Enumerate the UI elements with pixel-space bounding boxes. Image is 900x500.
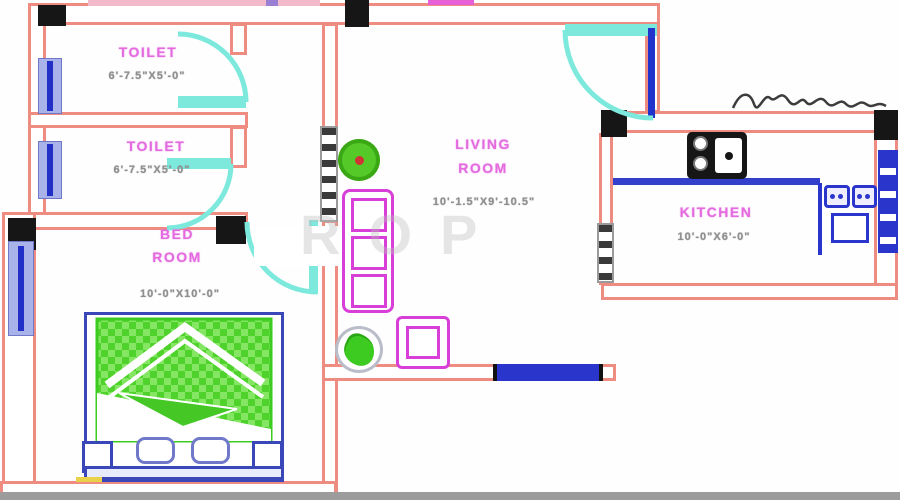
entry-door-closed-leaf — [648, 28, 655, 118]
sofa-seat — [351, 274, 387, 308]
column-top-left — [38, 5, 66, 26]
signature-squiggle — [733, 95, 886, 108]
stove-icon — [687, 132, 747, 179]
wall-toilet-right-mid — [230, 126, 247, 168]
toilet1-door-leaf — [178, 96, 246, 108]
wall-top — [28, 3, 660, 25]
kitchen-dims: 10'-0"X6'-0" — [678, 231, 751, 243]
window-bedroom — [8, 241, 34, 336]
top-edge-violet-mark — [266, 0, 278, 6]
living-label-line1: LIVING — [455, 136, 511, 152]
floor-plan: ROP TOILET 6'-7.5"X5'-0" TOILET 6'-7.5"X… — [0, 0, 900, 500]
top-edge-pink-band — [88, 0, 320, 6]
wall-toilet-divider — [28, 112, 248, 128]
top-edge-magenta-mark — [428, 0, 474, 5]
entry-door-leaf — [565, 24, 657, 36]
stove-hob — [715, 138, 742, 173]
stove-knob — [725, 152, 733, 160]
living-label-line2: ROOM — [458, 160, 508, 176]
toilet2-label: TOILET — [127, 138, 186, 154]
sink-basin — [824, 185, 850, 208]
sink-edge — [818, 183, 822, 255]
table-plant-icon — [339, 330, 380, 370]
ventilator-kitchen-left — [597, 223, 614, 283]
bed-headboard — [84, 466, 284, 480]
watermark: ROP — [300, 202, 505, 267]
window-toilet2 — [38, 141, 62, 199]
column-kitchen-right — [874, 110, 898, 140]
column-kitchen-left — [601, 110, 627, 137]
column-top-middle — [345, 0, 369, 27]
toilet1-label: TOILET — [119, 44, 178, 60]
bottom-edge-grey-bar — [0, 492, 900, 500]
living-dims: 10'-1.5"X9'-10.5" — [433, 196, 535, 208]
kitchen-label: KITCHEN — [680, 204, 753, 220]
toilet2-dims: 6'-7.5"X5'-0" — [114, 164, 191, 176]
entry-door-arc — [565, 30, 653, 118]
round-table — [335, 326, 383, 373]
window-kitchen-right — [878, 150, 898, 253]
plant-center-dot — [355, 156, 364, 165]
wall-toilet-right-upper — [230, 23, 247, 55]
yellow-tick — [76, 477, 102, 482]
wall-kitchen-bottom — [601, 283, 898, 300]
column-bedroom-right — [216, 216, 246, 244]
window-living-bottom — [493, 364, 603, 381]
bedroom-dims: 10'-0"X10'-0" — [140, 288, 220, 300]
plant-icon — [338, 139, 380, 181]
sink-drainboard — [831, 213, 869, 243]
bedroom-label-line1: BED — [160, 226, 194, 242]
bedroom-label-line2: ROOM — [152, 249, 202, 265]
kitchen-counter-line — [613, 178, 820, 185]
wall-living-left-upper — [322, 23, 338, 129]
wall-bedroom-top — [8, 212, 248, 230]
sofa-single-seater — [396, 316, 450, 369]
sofa-seat — [406, 326, 440, 359]
window-toilet1 — [38, 58, 62, 114]
kitchen-sink — [818, 183, 880, 257]
pillow — [136, 437, 175, 464]
toilet1-dims: 6'-7.5"X5'-0" — [109, 70, 186, 82]
sink-basin — [852, 185, 877, 208]
stove-burner — [693, 156, 708, 171]
wall-kitchen-top — [601, 111, 898, 133]
pillow — [191, 437, 230, 464]
stove-burner — [693, 136, 708, 151]
